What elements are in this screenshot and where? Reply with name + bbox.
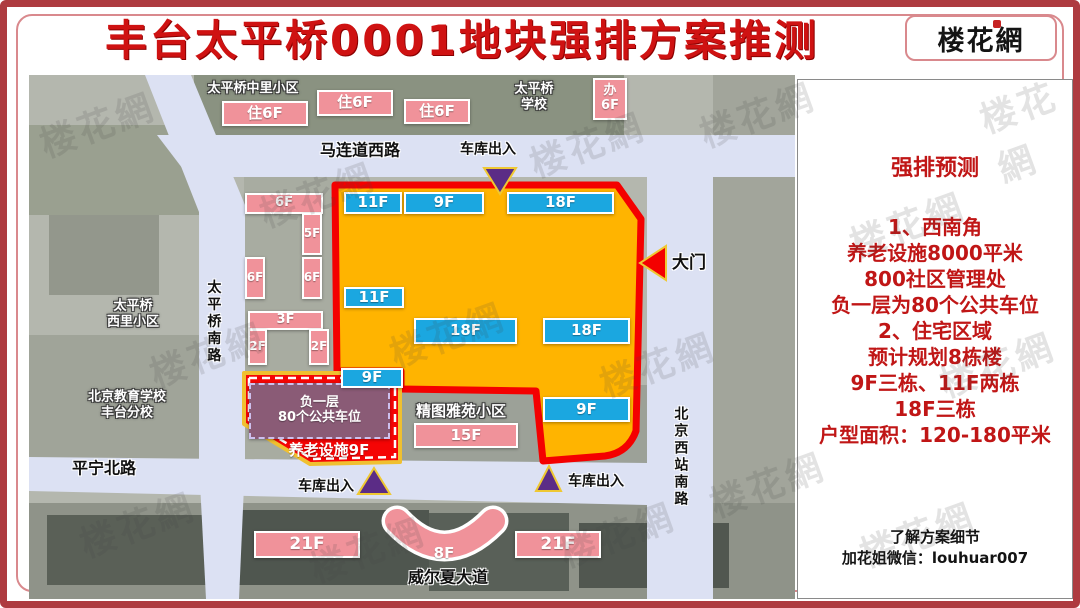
map-label-11: 精图雅苑小区	[416, 402, 506, 420]
map-label-5: 太平桥南路	[205, 280, 222, 365]
site-map: 住6F住6F住6F办 6F6F5F6F6F3F2F2F负一层 80个公共车位15…	[29, 75, 795, 599]
site-logo: 楼花網	[905, 15, 1057, 61]
panel-line-6: 9F三栋、11F两栋	[798, 370, 1072, 396]
map-label-14: 养老设施9F	[289, 441, 370, 459]
building-15F-12: 15F	[414, 423, 518, 448]
building-6F-4: 6F	[245, 193, 323, 214]
panel-line-0: 1、西南角	[798, 214, 1072, 240]
map-label-13: 北京西站南路	[672, 406, 689, 508]
building-住6F-2: 住6F	[404, 99, 470, 124]
footer-note: 了解方案细节	[798, 527, 1072, 549]
building-2F-9: 2F	[248, 329, 267, 365]
panel-line-7: 18F三栋	[798, 396, 1072, 422]
building-9F-21: 9F	[341, 368, 403, 388]
map-label-12: 威尔夏大道	[408, 567, 488, 586]
building-住6F-1: 住6F	[317, 90, 393, 116]
building-5F-5: 5F	[302, 213, 322, 255]
map-label-15: 8F	[434, 544, 455, 562]
footer-wechat: 加花姐微信：louhuar007	[798, 548, 1072, 570]
map-label-2: 马连道西路	[320, 140, 400, 159]
panel-line-1: 养老设施8000平米	[798, 240, 1072, 266]
map-label-4: 大门	[672, 253, 706, 273]
logo-text: 楼花網	[938, 19, 1025, 58]
building-21F-13: 21F	[254, 531, 360, 558]
panel-line-2: 800社区管理处	[798, 266, 1072, 292]
panel-line-8: 户型面积：120-180平米	[798, 422, 1072, 448]
map-label-8: 平宁北路	[72, 458, 136, 477]
page-title: 丰台太平桥0001地块强排方案推测	[47, 13, 877, 69]
panel-line-4: 2、住宅区域	[798, 318, 1072, 344]
building-负一层80个公共车位-11: 负一层 80个公共车位	[249, 383, 390, 439]
panel-footer: 了解方案细节 加花姐微信：louhuar007	[798, 527, 1072, 571]
panel-title: 强排预测	[798, 150, 1072, 182]
building-6F-7: 6F	[302, 257, 322, 299]
building-9F-16: 9F	[404, 192, 484, 214]
map-label-1: 太平桥 学校	[514, 81, 553, 112]
building-3F-8: 3F	[248, 311, 323, 330]
building-21F-14: 21F	[515, 531, 601, 558]
building-住6F-0: 住6F	[222, 101, 308, 126]
map-label-10: 车库出入	[568, 474, 624, 491]
panel-line-5: 预计规划8栋楼	[798, 344, 1072, 370]
info-panel: 强排预测 1、西南角养老设施8000平米800社区管理处负一层为80个公共车位2…	[797, 79, 1073, 599]
map-overlay-svg	[29, 75, 795, 599]
building-9F-22: 9F	[543, 397, 630, 422]
building-11F-15: 11F	[344, 192, 402, 214]
panel-line-3: 负一层为80个公共车位	[798, 292, 1072, 318]
building-办6F-3: 办 6F	[593, 78, 627, 120]
map-label-6: 太平桥 西里小区	[107, 298, 159, 329]
poster: 丰台太平桥0001地块强排方案推测 楼花網 住6F住6F住6F办 6F6F5F	[0, 0, 1080, 608]
map-label-0: 太平桥中里小区	[207, 81, 298, 97]
map-label-7: 北京教育学校 丰台分校	[88, 389, 166, 420]
logo-seal-icon	[993, 20, 1001, 28]
building-18F-20: 18F	[543, 318, 630, 344]
building-6F-6: 6F	[245, 257, 265, 299]
map-label-9: 车库出入	[298, 479, 354, 496]
building-11F-18: 11F	[344, 287, 404, 308]
building-2F-10: 2F	[309, 329, 329, 365]
map-label-3: 车库出入	[460, 142, 516, 159]
building-18F-19: 18F	[414, 318, 517, 344]
building-18F-17: 18F	[507, 192, 614, 214]
panel-lines: 1、西南角养老设施8000平米800社区管理处负一层为80个公共车位2、住宅区域…	[798, 214, 1072, 448]
